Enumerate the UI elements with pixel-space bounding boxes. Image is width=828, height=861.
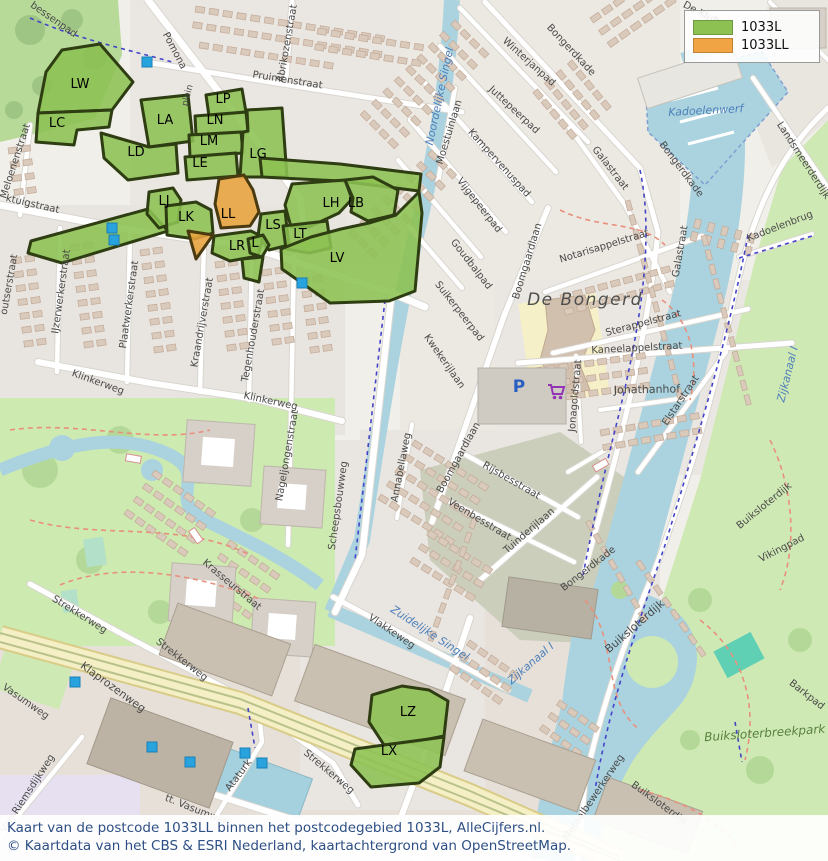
transit-stop-icon xyxy=(147,742,157,752)
map-caption: Kaart van de postcode 1033LL binnen het … xyxy=(0,815,828,861)
transit-stop-icon xyxy=(109,235,119,245)
region-label-L: L xyxy=(251,236,259,251)
transit-stop-icon xyxy=(240,748,250,758)
region-label-LH: LH xyxy=(322,196,339,211)
region-label-LZ: LZ xyxy=(400,705,416,720)
region-label-LN: LN xyxy=(207,113,224,128)
transit-stop-icon xyxy=(70,677,80,687)
legend: 1033L 1033LL xyxy=(684,10,820,63)
region-label-LV: LV xyxy=(330,251,345,266)
transit-stop-icon xyxy=(185,757,195,767)
map-canvas[interactable]: LWLCLALDLPLNLMLELGLJLKLHLBLSLTLRLLVLLLZL… xyxy=(0,0,828,861)
parking-icon: P xyxy=(513,377,525,397)
legend-swatch-1033l xyxy=(693,20,733,35)
region-label-LR: LR xyxy=(229,239,245,254)
transit-stop-icon xyxy=(142,57,152,67)
region-label-LE: LE xyxy=(192,156,207,171)
region-label-LB: LB xyxy=(348,196,364,211)
region-label-LJ: LJ xyxy=(158,194,169,209)
region-label-LS: LS xyxy=(265,218,281,233)
region-label-LP: LP xyxy=(215,92,230,107)
region-label-LG: LG xyxy=(249,147,266,162)
legend-item-1033l: 1033L xyxy=(693,20,811,35)
region-area[interactable] xyxy=(242,257,263,282)
region-label-LW: LW xyxy=(71,77,90,92)
legend-item-1033ll: 1033LL xyxy=(693,38,811,53)
region-label-LD: LD xyxy=(127,145,144,160)
legend-swatch-1033ll xyxy=(693,38,733,53)
region-label-LA: LA xyxy=(157,113,174,128)
map-label-de-bongerd: De Bongerd xyxy=(527,290,643,310)
region-label-LT: LT xyxy=(293,227,306,242)
map-screenshot: LWLCLALDLPLNLMLELGLJLKLHLBLSLTLRLLVLLLZL… xyxy=(0,0,828,861)
transit-stop-icon xyxy=(107,223,117,233)
caption-line1: Kaart van de postcode 1033LL binnen het … xyxy=(7,819,828,837)
caption-line2: © Kaartdata van het CBS & ESRI Nederland… xyxy=(7,837,828,855)
region-label-LK: LK xyxy=(178,210,194,225)
transit-stop-icon xyxy=(257,758,267,768)
region-label-LM: LM xyxy=(200,134,218,149)
region-label-LC: LC xyxy=(49,116,65,131)
transit-stop-icon xyxy=(297,278,307,288)
legend-label-1033l: 1033L xyxy=(741,20,781,35)
region-label-LX: LX xyxy=(381,744,397,759)
map-label-jonathanhof: Jonathanhof xyxy=(613,382,682,396)
region-label-LL: LL xyxy=(221,207,236,222)
legend-label-1033ll: 1033LL xyxy=(741,38,789,53)
